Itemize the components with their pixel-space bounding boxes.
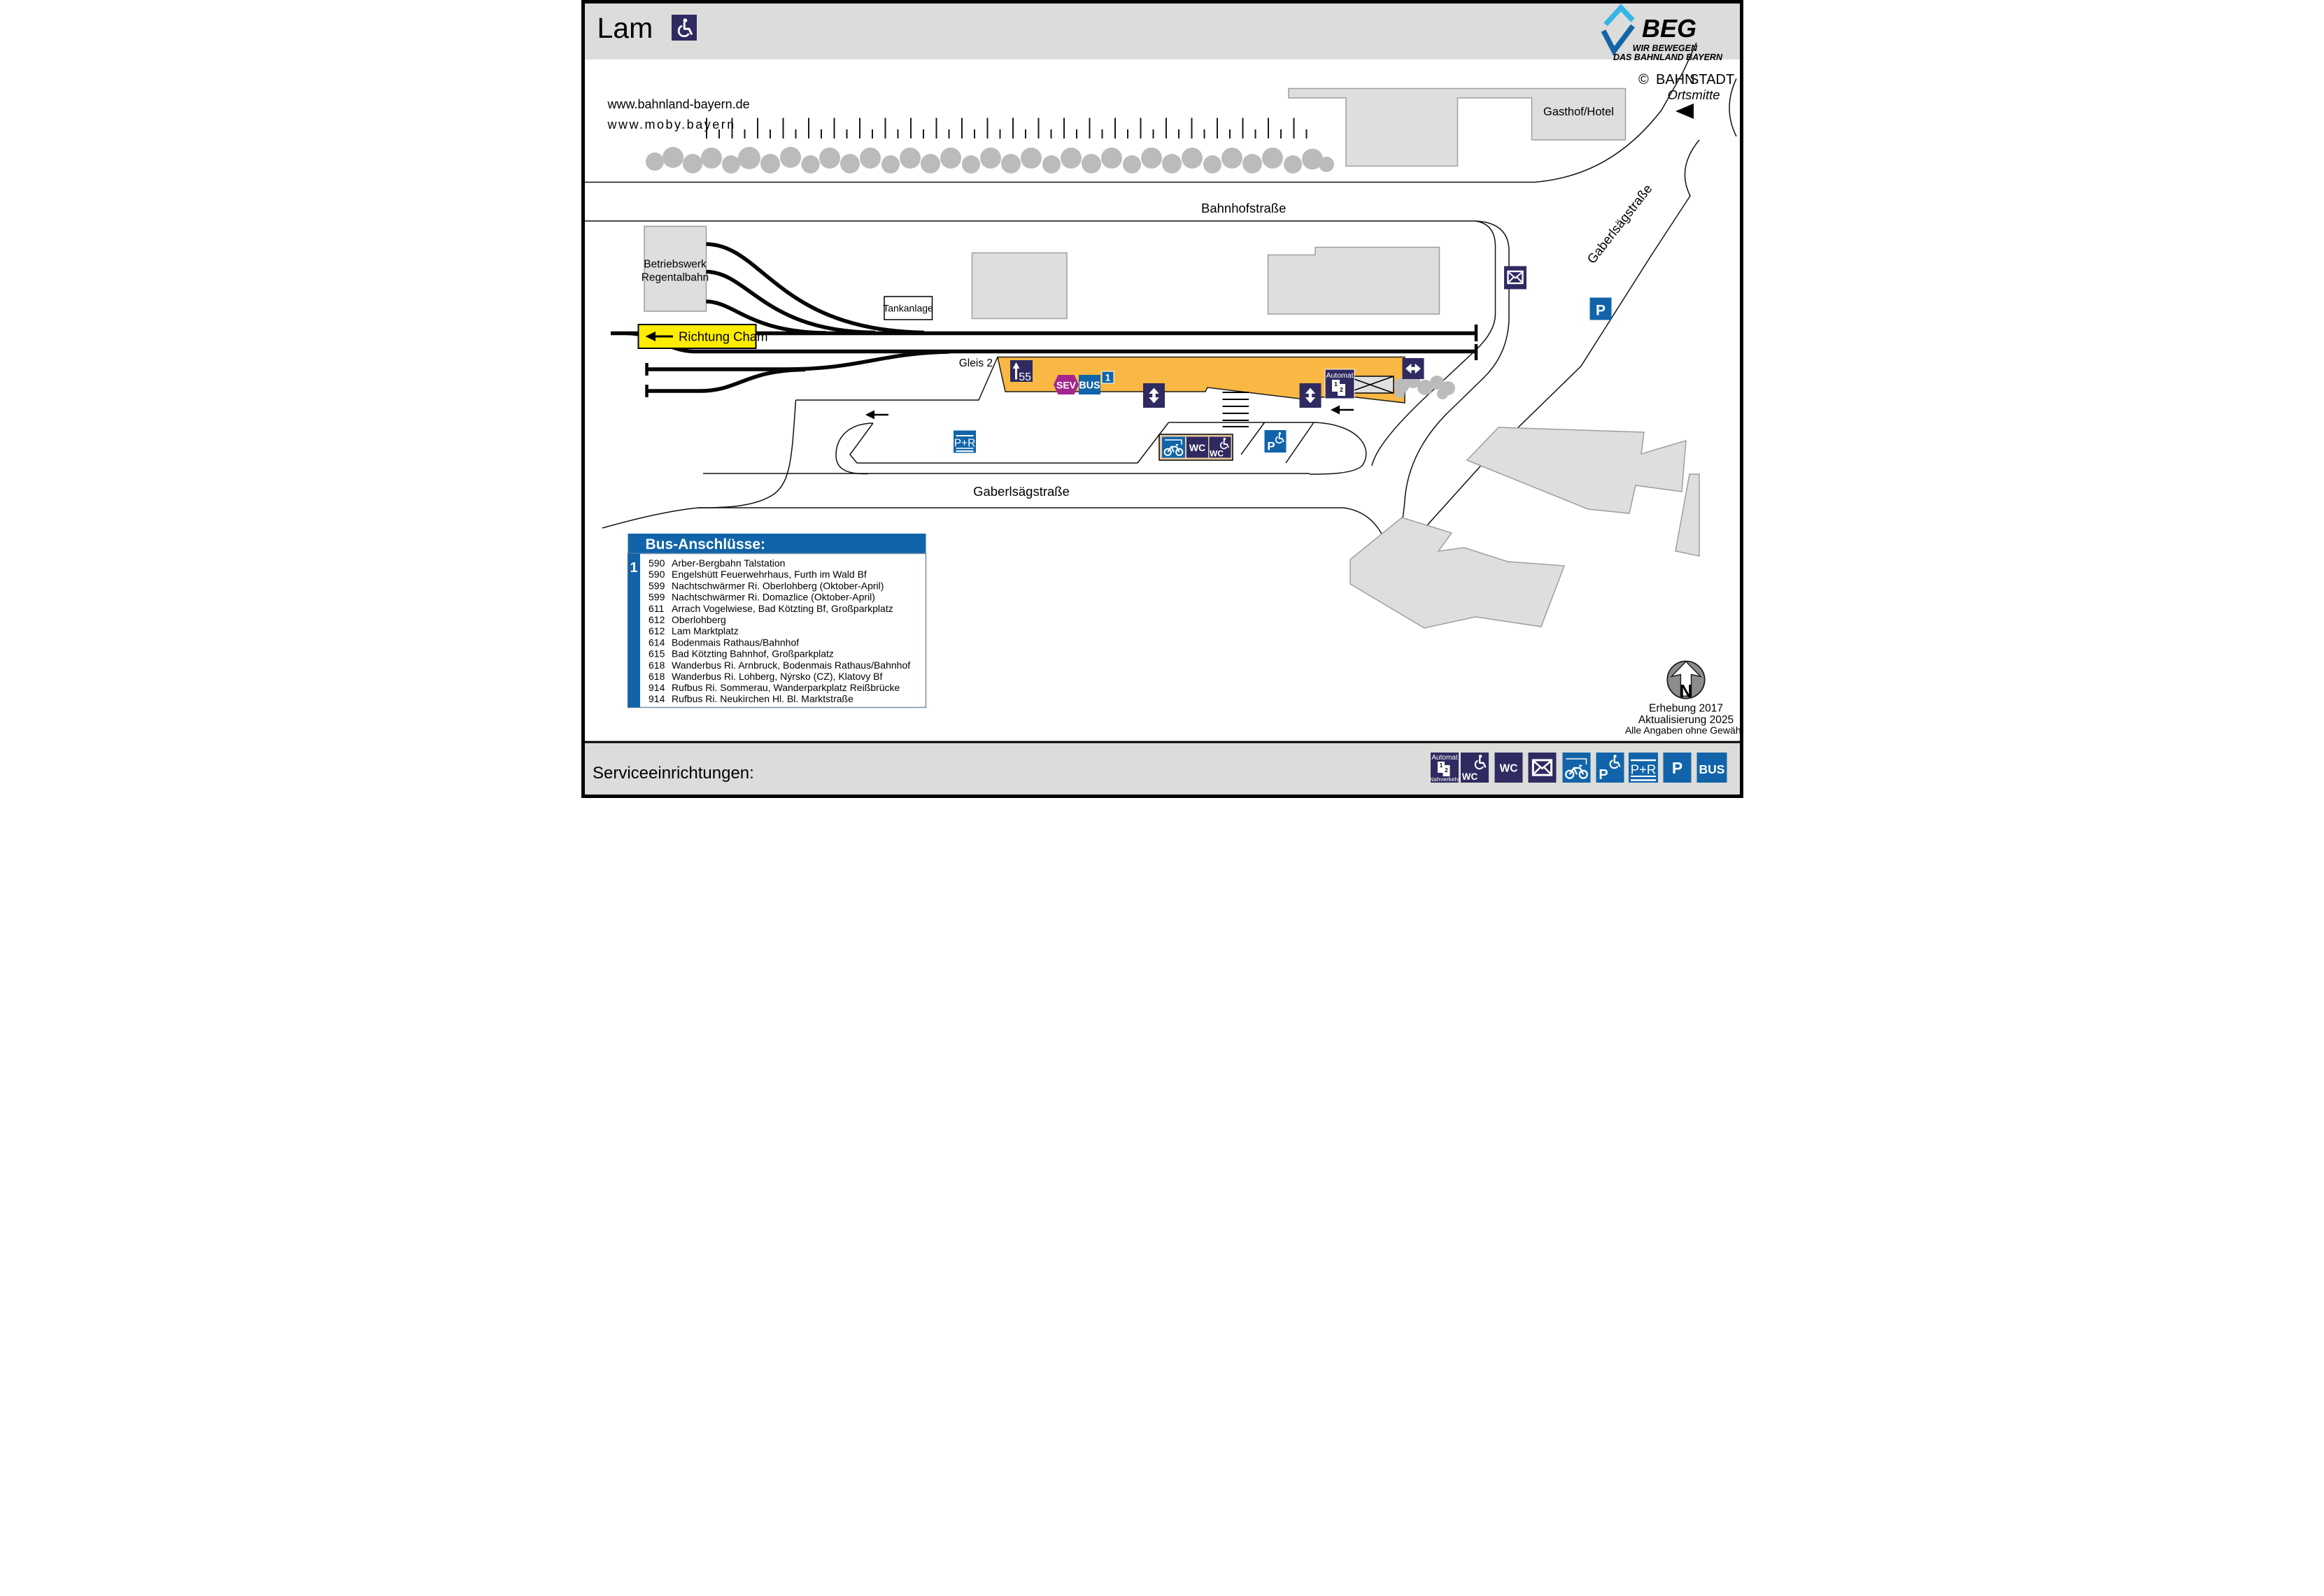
richtung-cham-label: Richtung Cham bbox=[679, 329, 768, 344]
bus-route-number: 590 bbox=[649, 557, 665, 569]
survey-note-1: Erhebung 2017 bbox=[1648, 703, 1722, 715]
bus-route-row: 590Engelshütt Feuerwehrhaus, Furth im Wa… bbox=[649, 569, 867, 580]
bus-stop-number: 1 bbox=[1105, 373, 1110, 383]
legend-mailbox-icon bbox=[1528, 753, 1556, 783]
bus-panel-stop-strip bbox=[628, 554, 640, 708]
sev-stop-icon: SEV bbox=[1054, 375, 1079, 394]
bus-route-dest: Nachtschwärmer Ri. Domazlice (Oktober-Ap… bbox=[672, 592, 875, 603]
bus-route-dest: Nachtschwärmer Ri. Oberlohberg (Oktober-… bbox=[672, 580, 884, 592]
legend-automat-label: Automat bbox=[1431, 754, 1457, 762]
services-heading: Serviceeinrichtungen: bbox=[593, 764, 754, 783]
legend-accessible-parking-p: P bbox=[1599, 767, 1608, 783]
bus-route-dest: Arber-Bergbahn Talstation bbox=[672, 557, 785, 569]
legend-accessible-parking-icon: P bbox=[1596, 753, 1624, 783]
bus-panel-stop-number: 1 bbox=[630, 560, 637, 576]
bus-stop-label: BUS bbox=[1079, 380, 1100, 392]
link-bahnland[interactable]: www.bahnland-bayern.de bbox=[607, 97, 749, 111]
machine-digit-2: 2 bbox=[1340, 386, 1343, 393]
survey-note-2: Aktualisierung 2025 bbox=[1638, 714, 1733, 726]
bus-route-number: 612 bbox=[649, 614, 665, 625]
platform-height-value: 55 bbox=[1019, 371, 1031, 383]
bus-route-dest: Wanderbus Ri. Arnbruck, Bodenmais Rathau… bbox=[672, 660, 910, 671]
ticket-machine-map-icon: Automat 1 2 bbox=[1325, 369, 1354, 399]
legend-wc-icon: WC bbox=[1494, 753, 1522, 783]
legend-ticket-machine-icon: Automat 1 2 Nahverkehr bbox=[1429, 753, 1460, 783]
bus-route-row: 914Rufbus Ri. Neukirchen Hl. Bl. Marktst… bbox=[649, 693, 853, 704]
accessible-parking-map-icon: P bbox=[1264, 430, 1286, 453]
bus-route-dest: Engelshütt Feuerwehrhaus, Furth im Wald … bbox=[672, 569, 867, 580]
accessible-station-icon bbox=[672, 15, 697, 41]
legend-accessible-wc-icon: WC bbox=[1461, 753, 1489, 783]
service-shelter: WC WC bbox=[1159, 434, 1233, 460]
pr-map-label: P+R bbox=[954, 438, 975, 450]
building-mid-west bbox=[972, 253, 1067, 319]
page-title: Lam bbox=[597, 12, 653, 44]
bus-route-number: 599 bbox=[649, 592, 665, 603]
legend-bus-label: BUS bbox=[1699, 762, 1724, 776]
legend-park-and-ride-icon: P+R bbox=[1629, 753, 1658, 783]
bus-route-dest: Bodenmais Rathaus/Bahnhof bbox=[672, 637, 799, 648]
wc-icon: WC bbox=[1186, 437, 1208, 458]
bahnhofstrasse-label: Bahnhofstraße bbox=[1201, 201, 1286, 215]
legend-bus-icon: BUS bbox=[1696, 753, 1727, 783]
bus-route-number: 618 bbox=[649, 671, 665, 682]
sev-label: SEV bbox=[1056, 380, 1076, 391]
gleis2-label: Gleis 2 bbox=[958, 357, 992, 369]
platform-access-icon-east bbox=[1299, 383, 1321, 408]
legend-parking-p: P bbox=[1671, 759, 1682, 777]
bus-route-dest: Lam Marktplatz bbox=[672, 625, 739, 636]
accessible-parking-p: P bbox=[1267, 440, 1275, 453]
automat-map-label: Automat bbox=[1326, 371, 1353, 380]
bus-route-row: 599Nachtschwärmer Ri. Domazlice (Oktober… bbox=[649, 592, 875, 603]
bus-route-number: 590 bbox=[649, 569, 665, 580]
bus-panel-title: Bus-Anschlüsse: bbox=[645, 536, 765, 553]
legend-parking-icon: P bbox=[1663, 753, 1691, 783]
legend-pr-label: P+R bbox=[1630, 762, 1656, 777]
bus-route-number: 612 bbox=[649, 625, 665, 636]
platform-height-icon: 55 bbox=[1010, 360, 1033, 383]
bus-route-row: 914Rufbus Ri. Sommerau, Wanderparkplatz … bbox=[649, 682, 900, 693]
accessible-wc-icon: WC bbox=[1209, 437, 1231, 459]
park-and-ride-map-icon: P+R bbox=[954, 431, 976, 453]
tankanlage-label: Tankanlage bbox=[883, 303, 933, 314]
bus-route-dest: Rufbus Ri. Neukirchen Hl. Bl. Marktstraß… bbox=[672, 693, 853, 704]
bus-route-row: 612Oberlohberg bbox=[649, 614, 726, 625]
bus-route-row: 612Lam Marktplatz bbox=[649, 625, 739, 636]
header-band bbox=[584, 3, 1741, 59]
bike-shelter-icon bbox=[1162, 437, 1185, 458]
bus-route-row: 618Wanderbus Ri. Lohberg, Nýrsko (CZ), K… bbox=[649, 671, 882, 682]
building-station bbox=[1268, 248, 1439, 315]
legend-accessible-wc-label: WC bbox=[1461, 771, 1478, 782]
bus-route-dest: Bad Kötzting Bahnhof, Großparkplatz bbox=[672, 648, 834, 660]
bus-route-number: 914 bbox=[649, 682, 665, 693]
bus-route-number: 618 bbox=[649, 660, 665, 671]
station-map-page: N Lam www.bahnland-bayern.de www.moby.ba… bbox=[581, 0, 1743, 798]
bus-route-row: 599Nachtschwärmer Ri. Oberlohberg (Oktob… bbox=[649, 580, 884, 592]
bahnstadt-stadt: STADT bbox=[1689, 72, 1734, 87]
betriebswerk-label-2: Regentalbahn bbox=[641, 272, 709, 284]
bus-route-dest: Oberlohberg bbox=[672, 614, 726, 625]
gasthof-label: Gasthof/Hotel bbox=[1543, 106, 1614, 118]
richtung-cham-sign: Richtung Cham bbox=[638, 325, 767, 348]
gaberlsaegstrasse-label-south: Gaberlsägstraße bbox=[973, 484, 1070, 499]
bus-route-row: 618Wanderbus Ri. Arnbruck, Bodenmais Rat… bbox=[649, 660, 910, 671]
bus-route-dest: Rufbus Ri. Sommerau, Wanderparkplatz Rei… bbox=[672, 682, 900, 693]
bus-connections-panel: Bus-Anschlüsse: 1 590Arber-Bergbahn Tals… bbox=[628, 534, 926, 708]
platform-access-icon-west bbox=[1143, 383, 1165, 408]
services-legend: Automat 1 2 Nahverkehr WC WC P bbox=[1429, 753, 1727, 783]
bus-route-number: 914 bbox=[649, 693, 665, 704]
accessible-wc-label: WC bbox=[1210, 449, 1224, 459]
bus-route-number: 611 bbox=[649, 603, 665, 614]
bus-route-row: 611Arrach Vogelwiese, Bad Kötzting Bf, G… bbox=[649, 603, 893, 614]
bus-route-number: 599 bbox=[649, 580, 665, 592]
legend-bike-shelter-icon bbox=[1562, 753, 1590, 783]
legend-wc-label: WC bbox=[1499, 763, 1517, 775]
survey-note-3: Alle Angaben ohne Gewähr! bbox=[1624, 725, 1743, 736]
bus-route-number: 614 bbox=[649, 637, 665, 648]
parking-p: P bbox=[1595, 303, 1605, 319]
legend-nahverkehr-label: Nahverkehr bbox=[1429, 776, 1460, 783]
betriebswerk-label-1: Betriebswerk bbox=[644, 259, 707, 271]
mailbox-map-icon bbox=[1504, 266, 1526, 290]
fence-row bbox=[704, 118, 1317, 139]
copyright-symbol: © bbox=[1638, 72, 1649, 87]
wc-label: WC bbox=[1189, 442, 1205, 453]
crossing-both-sides-icon bbox=[1402, 358, 1424, 379]
legend-machine-digit-1: 1 bbox=[1439, 762, 1443, 769]
bus-route-row: 615Bad Kötzting Bahnhof, Großparkplatz bbox=[649, 648, 834, 660]
bus-route-number: 615 bbox=[649, 648, 665, 660]
ortsmitte-label: Ortsmitte bbox=[1667, 87, 1720, 102]
bus-route-dest: Wanderbus Ri. Lohberg, Nýrsko (CZ), Klat… bbox=[672, 671, 882, 682]
beg-wordmark: BEG bbox=[1642, 14, 1696, 43]
bus-route-dest: Arrach Vogelwiese, Bad Kötzting Bf, Groß… bbox=[672, 603, 893, 614]
beg-claim-2: DAS BAHNLAND BAYERN bbox=[1613, 52, 1722, 62]
parking-map-icon: P bbox=[1589, 298, 1611, 320]
legend-machine-digit-2: 2 bbox=[1445, 767, 1448, 774]
machine-digit-1: 1 bbox=[1334, 380, 1338, 387]
beg-claim-1: WIR BEWEGEN bbox=[1632, 43, 1697, 53]
